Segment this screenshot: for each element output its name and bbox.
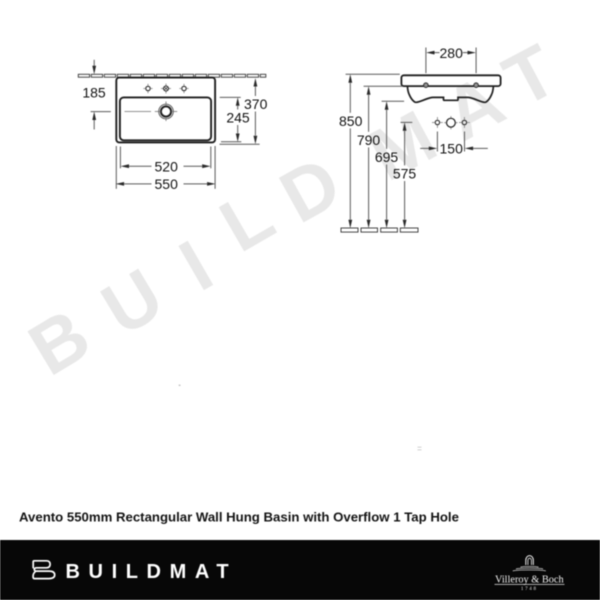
svg-text:1748: 1748	[521, 587, 538, 592]
svg-text:280: 280	[440, 45, 464, 61]
svg-text:550: 550	[155, 176, 179, 192]
svg-text:D: D	[267, 140, 354, 239]
svg-text:Avento 550mm Rectangular Wall: Avento 550mm Rectangular Wall Hung Basin…	[19, 509, 459, 524]
svg-text:850: 850	[339, 113, 363, 129]
svg-text:790: 790	[357, 132, 381, 148]
svg-text:695: 695	[375, 149, 399, 165]
svg-text:520: 520	[155, 158, 179, 174]
svg-text:U: U	[88, 253, 177, 352]
svg-text:370: 370	[244, 96, 268, 112]
svg-text:Villeroy & Boch: Villeroy & Boch	[495, 574, 564, 585]
svg-text:L: L	[206, 173, 287, 267]
svg-text:185: 185	[82, 85, 106, 101]
svg-text:575: 575	[393, 165, 417, 181]
svg-text:BUILDMAT: BUILDMAT	[66, 561, 238, 583]
svg-text:I: I	[166, 224, 225, 306]
svg-text:150: 150	[440, 141, 464, 157]
svg-text:B: B	[15, 293, 104, 392]
